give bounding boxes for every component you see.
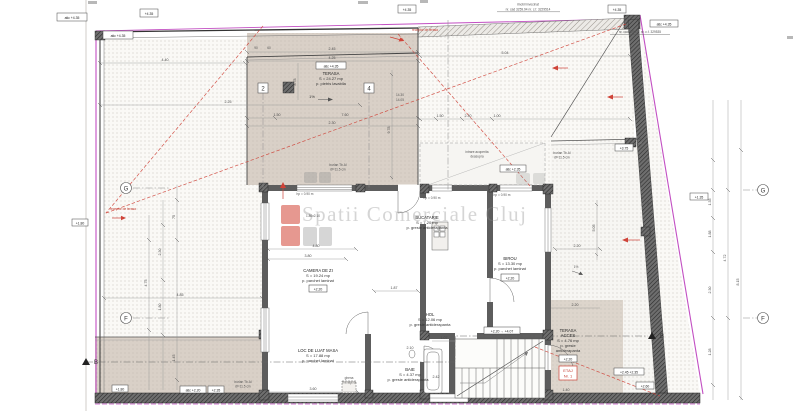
note-hp-2: hp = 0.90 m (424, 196, 441, 200)
elevation-label: +3.75 (620, 147, 629, 151)
slope-label-terasa: 1% (309, 94, 315, 99)
dim-label: 2.20 (574, 244, 581, 248)
dim-label: 2.30 (465, 114, 472, 118)
elevation-label: atic +2.35 (506, 168, 521, 172)
dim-label: 1.80 (158, 304, 162, 311)
room-finish-hol: p. gresie antiderapanta (410, 322, 452, 327)
room-finish-birou: p. parchet laminat (494, 266, 527, 271)
dim-label: 75 (172, 215, 176, 219)
dim-label: 1.00 (494, 114, 501, 118)
floor-plan-page: Spatii Comerciale Cluj 4.40 2.45 (0, 0, 800, 411)
dim-label: 7.60 (342, 113, 349, 117)
dim-label: 3.80 (305, 254, 312, 258)
grid-bubble-f-right: F (761, 317, 765, 323)
grid-bubble-f-left: F (124, 317, 128, 323)
room-level-acces: +2.20 (564, 358, 573, 362)
note-hp-1: hp = 0.90 m (297, 192, 314, 196)
note-receptor-left: receptor de terasa (110, 207, 136, 211)
dim-label: 2.20 (572, 303, 579, 307)
room-finish-terasa: p. pietris lavabila (316, 81, 347, 86)
elevation-label: +1.80 (76, 222, 85, 226)
dim-label: 8.15 (736, 279, 740, 286)
dim-label: 14.05 (396, 98, 404, 102)
dim-label: 4.40 (162, 58, 169, 62)
dim-label: 4.80 (313, 244, 320, 248)
dim-label: 1.45 (172, 355, 176, 362)
note-burlan-1a: burlan Tb.Al (329, 163, 346, 167)
elevation-label: +2.20 → +4.07 (491, 330, 514, 334)
dim-label: 4.75 (144, 280, 148, 287)
note-intrare-2: deasupra (470, 155, 484, 159)
dim-label: 2.30 (329, 121, 336, 125)
section-label-b-right: B (660, 334, 664, 340)
room-finish-bucatarie: p. gresie antiderapanta (407, 225, 449, 230)
dim-label: 4.72 (723, 255, 727, 262)
dim-label: 90 (254, 46, 258, 50)
note-burlan-2a: burlan Tb.Al (553, 151, 570, 155)
note-burlan-3a: burlan Tb.Al (234, 380, 251, 384)
note-burlan-1b: Ø=11.5 cm (330, 168, 346, 172)
dim-label: 14.30 (396, 93, 404, 97)
note-ghena-1: ghena (345, 376, 354, 380)
dim-label: 1.88 (708, 231, 712, 238)
elevation-label: atic +4.35 (65, 16, 80, 20)
note-tigla: tigla (645, 201, 651, 205)
unit-tag-line1: ETAJ (563, 368, 572, 373)
floor-plan-canvas: Spatii Comerciale Cluj 4.40 2.45 (0, 0, 800, 411)
dim-label: 8.78 (293, 79, 297, 86)
dim-label: 1.07 (441, 336, 448, 340)
room-level-birou: +2.20 (506, 277, 515, 281)
dim-label: 5.05 (592, 225, 596, 232)
elevation-label: +4.35 (403, 8, 412, 12)
elevation-label: +2.35 (212, 389, 221, 393)
note-neighbor-right: nr. cad 325427 nr. c.f. 329535 (619, 30, 661, 34)
note-window-size: 1.80x2.10 (306, 214, 320, 218)
note-ghena-2: menajera (342, 381, 356, 385)
room-finish2-acces: antiderapanta (556, 348, 581, 353)
room-level-camera: +2.20 (314, 288, 323, 292)
dim-label: 4.25 (329, 56, 336, 60)
dim-label: 5.04 (502, 51, 509, 55)
dim-label: 60 (267, 46, 271, 50)
elevation-label: atic +4.35 (111, 34, 126, 38)
dim-label: 1.50 (274, 113, 281, 117)
dim-label: 2.45 (329, 47, 336, 51)
dim-label: 1.28 (708, 349, 712, 356)
room-finish-camera: p. parchet laminat (302, 278, 335, 283)
elevation-label: +4.35 (613, 8, 622, 12)
elevation-label: +2.60 (641, 385, 650, 389)
section-label-b-left: B (94, 360, 98, 366)
note-receptor-top: receptor de terasa (412, 28, 438, 32)
dim-label: 3.60 (310, 387, 317, 391)
terasa-atic-label: atic +4.35 (324, 65, 339, 69)
elevation-label: +4.35 (145, 12, 154, 16)
note-neighbor-top-2: nr. cad 3259.94 nr. c.f. 3229514 (506, 8, 551, 12)
dim-label: 1.40 (563, 388, 570, 392)
note-slope-right: 1% (574, 265, 579, 269)
dim-label: 2.42 (433, 375, 440, 379)
room-finish-locmasa: p. parchet laminat (302, 358, 335, 363)
dim-label: 4.85 (177, 293, 184, 297)
unit-tag-line2: Nr. 1 (564, 374, 573, 379)
note-burlan-2b: Ø=11.5 cm (554, 156, 570, 160)
dim-label: 2.25 (225, 100, 232, 104)
elevation-label: +2.45 +2.35 (620, 371, 638, 375)
grid-bubble-g-left: G (124, 187, 129, 193)
dim-label: 2.10 (407, 346, 414, 350)
note-hp-3: hp = 0.90 m (494, 193, 511, 197)
dim-label: 1.35 (708, 199, 712, 206)
staircase (455, 339, 545, 398)
note-burlan-3b: Ø=11.5 cm (235, 385, 251, 389)
note-neighbor-top-1: imobil invecinat (517, 3, 539, 7)
room-finish-baie: p. gresie antiderapanta (388, 377, 430, 382)
elevation-label: atic +2.20 (186, 389, 201, 393)
elevation-label: +1.35 (695, 196, 704, 200)
note-intrare-1: intrare acoperita (465, 150, 488, 154)
dim-label: 1.87 (391, 286, 398, 290)
elevation-label: atic +4.35 (657, 23, 672, 27)
grid-bubble-g-right: G (761, 189, 766, 195)
dim-label: 1.50 (437, 114, 444, 118)
dim-label: 9.78 (387, 127, 391, 134)
elevation-label: +1.80 (116, 388, 125, 392)
dim-label: 2.30 (158, 249, 162, 256)
watermark-text: Spatii Comerciale Cluj (302, 202, 527, 226)
dim-label: 2.30 (708, 287, 712, 294)
